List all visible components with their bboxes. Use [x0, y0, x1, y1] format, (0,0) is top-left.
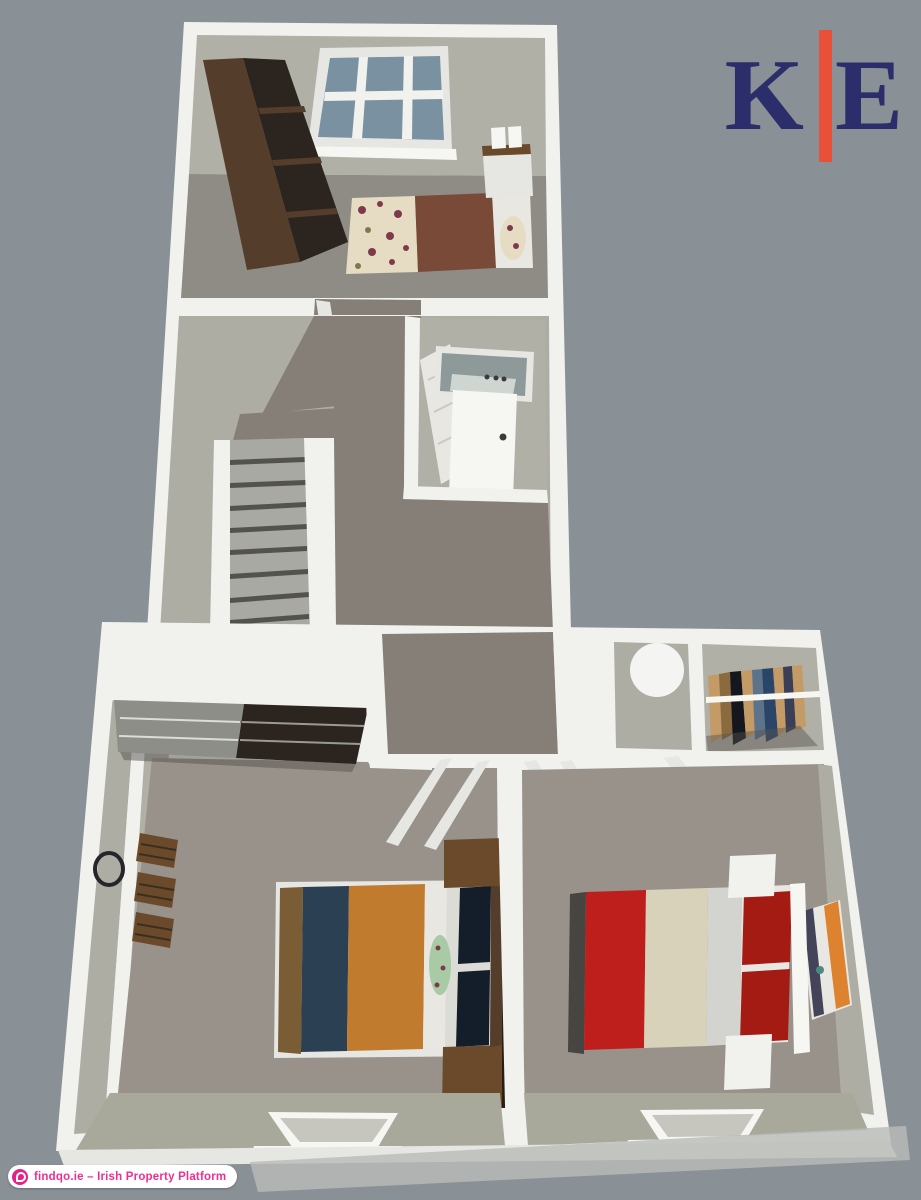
fitted-wardrobe-top	[102, 636, 378, 708]
screenshot-canvas: K E findqo.ie – Irish Property Platform	[0, 0, 921, 1200]
watermark-label: findqo.ie – Irish Property Platform	[34, 1171, 226, 1183]
door-knob	[500, 434, 507, 441]
logo-letter-e: E	[835, 45, 903, 147]
green-floral-cushion	[429, 935, 451, 995]
findqo-watermark-badge: findqo.ie – Irish Property Platform	[8, 1165, 237, 1188]
round-lamp	[630, 643, 684, 697]
headboard-cabinet-top	[444, 838, 502, 888]
red-runner	[584, 890, 646, 1050]
door-panel	[449, 390, 517, 498]
lower-hallway	[364, 632, 604, 764]
art-teal-dot	[816, 966, 824, 974]
bathroom	[403, 316, 548, 503]
bed-shadow-edge	[568, 892, 586, 1054]
double-bed-floral	[346, 192, 533, 274]
upper-floor-section	[147, 22, 571, 632]
bed-floral-duvet	[346, 196, 418, 274]
bedside-box	[491, 127, 506, 149]
headboard-side-board	[490, 886, 502, 1047]
right-bedroom	[522, 764, 874, 1115]
fitted-wardrobe-front-gray	[114, 700, 244, 758]
logo-letter-k: K	[725, 45, 804, 147]
foot-rail	[278, 887, 303, 1054]
hall-right-wall	[553, 632, 604, 758]
fitted-wardrobe-front-dark	[236, 704, 368, 764]
red-pillow	[740, 969, 790, 1043]
carpet-hall-upper	[334, 398, 405, 499]
bedside-box	[508, 126, 522, 148]
fitted-wardrobe	[102, 636, 378, 772]
lower-floor-section	[56, 622, 910, 1192]
bed-frame-bottom	[724, 1034, 772, 1090]
bedside-top	[483, 154, 533, 198]
floorplan-render	[0, 0, 921, 1200]
stair-treads	[230, 438, 310, 632]
navy-runner	[301, 886, 349, 1052]
navy-pillow	[458, 886, 491, 964]
wall-shelves	[132, 833, 178, 948]
carpet-hall-lower	[334, 486, 553, 632]
bathroom-left-wall	[404, 316, 420, 488]
staircase	[210, 438, 336, 632]
findqo-circle-icon	[12, 1169, 28, 1185]
logo-divider-bar	[819, 30, 832, 162]
bed-brown-duvet	[415, 193, 496, 272]
closet-bottom-wall	[600, 750, 826, 766]
doorway-wall-left	[368, 756, 432, 770]
red-pillow	[742, 891, 792, 965]
window	[301, 46, 457, 160]
navy-pillow	[456, 970, 490, 1047]
hall-carpet	[382, 632, 558, 754]
doorway-wall-right	[584, 758, 606, 770]
cream-duvet	[644, 888, 708, 1048]
bathroom-door	[449, 390, 517, 498]
top-bedroom	[181, 35, 548, 298]
silver-band	[706, 887, 742, 1046]
floral-cushion	[500, 216, 526, 260]
orange-duvet	[347, 884, 425, 1051]
agency-logo: K E	[725, 30, 903, 162]
bed-frame-top	[728, 854, 776, 898]
